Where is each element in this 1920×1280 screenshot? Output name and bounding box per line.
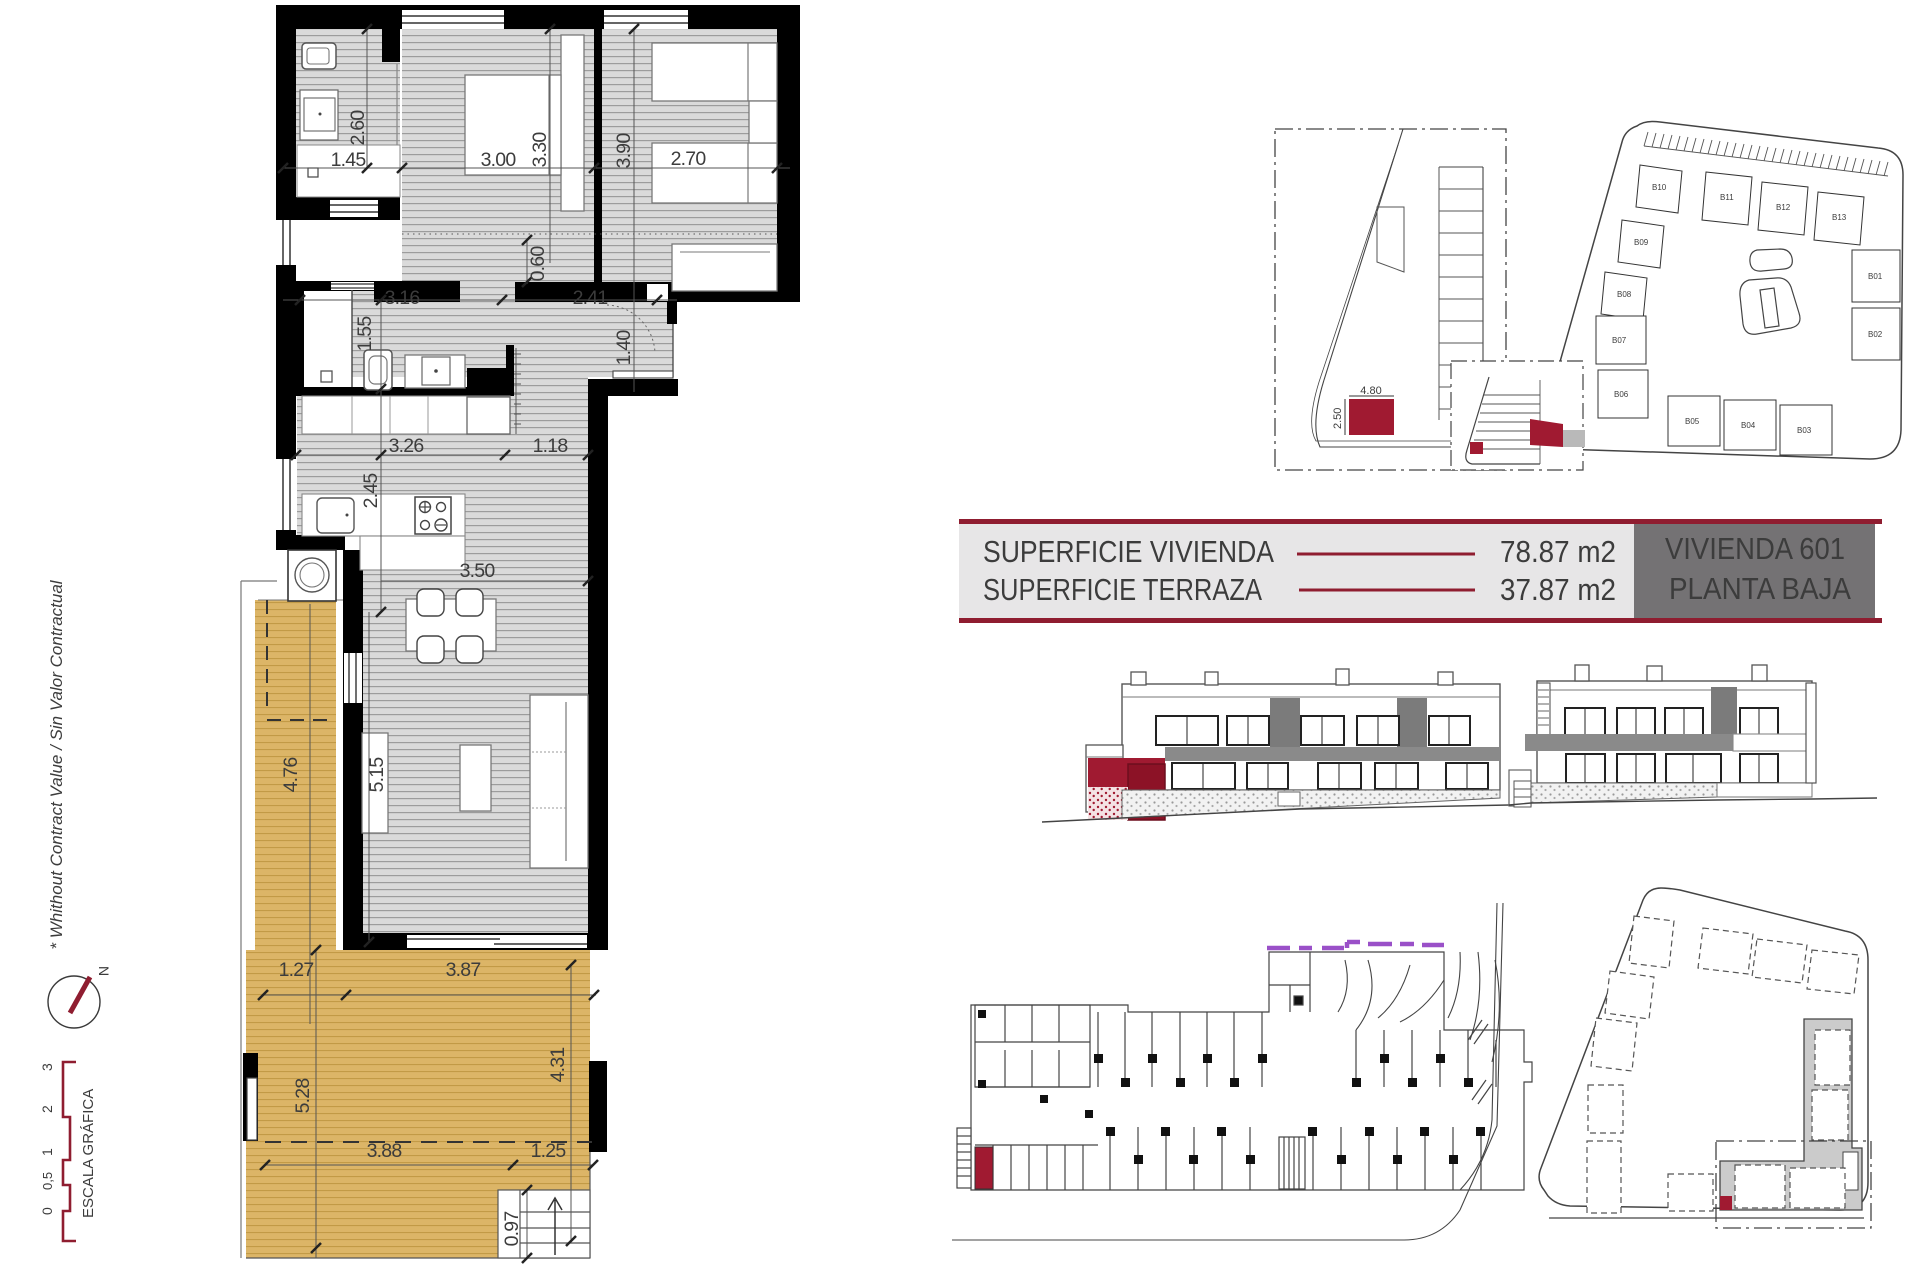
svg-text:3.50: 3.50 xyxy=(460,560,496,582)
svg-text:1.27: 1.27 xyxy=(279,959,314,981)
svg-text:B04: B04 xyxy=(1741,421,1756,430)
svg-text:2.45: 2.45 xyxy=(360,473,382,509)
svg-text:78.87 m2: 78.87 m2 xyxy=(1500,534,1616,569)
svg-text:B07: B07 xyxy=(1612,336,1627,345)
svg-text:3.88: 3.88 xyxy=(367,1140,402,1162)
svg-text:4.76: 4.76 xyxy=(280,758,302,793)
svg-text:1.40: 1.40 xyxy=(613,330,635,366)
svg-text:B13: B13 xyxy=(1832,213,1847,222)
svg-text:SUPERFICIE VIVIENDA: SUPERFICIE VIVIENDA xyxy=(983,534,1274,569)
svg-text:1.55: 1.55 xyxy=(354,316,376,352)
svg-text:ESCALA GRÁFICA: ESCALA GRÁFICA xyxy=(80,1089,97,1218)
svg-text:3.26: 3.26 xyxy=(389,435,424,457)
svg-text:B08: B08 xyxy=(1617,290,1632,299)
svg-text:VIVIENDA 601: VIVIENDA 601 xyxy=(1665,531,1845,566)
svg-text:2.60: 2.60 xyxy=(347,110,369,146)
svg-text:3.16: 3.16 xyxy=(385,287,420,309)
svg-text:3.87: 3.87 xyxy=(446,959,481,981)
svg-text:3.00: 3.00 xyxy=(481,149,517,171)
svg-text:4.31: 4.31 xyxy=(547,1048,569,1083)
svg-text:2.70: 2.70 xyxy=(671,148,707,170)
svg-text:* Whithout Contract Value / Si: * Whithout Contract Value / Sin Valor Co… xyxy=(47,579,66,949)
svg-text:0: 0 xyxy=(39,1207,55,1215)
svg-text:0,5: 0,5 xyxy=(40,1172,55,1190)
svg-text:4.80: 4.80 xyxy=(1360,385,1381,397)
svg-text:B03: B03 xyxy=(1797,426,1812,435)
svg-text:5.15: 5.15 xyxy=(366,757,388,793)
svg-text:3.30: 3.30 xyxy=(529,132,551,168)
svg-text:2.50: 2.50 xyxy=(1332,408,1344,429)
svg-text:0.97: 0.97 xyxy=(501,1212,523,1247)
svg-text:B10: B10 xyxy=(1652,183,1667,192)
svg-text:PLANTA BAJA: PLANTA BAJA xyxy=(1669,571,1851,606)
svg-text:SUPERFICIE TERRAZA: SUPERFICIE TERRAZA xyxy=(983,572,1262,607)
svg-text:B05: B05 xyxy=(1685,417,1700,426)
svg-text:1.18: 1.18 xyxy=(533,435,568,457)
svg-text:B12: B12 xyxy=(1776,203,1791,212)
svg-text:0.60: 0.60 xyxy=(527,246,549,282)
svg-text:B09: B09 xyxy=(1634,238,1649,247)
svg-text:3.90: 3.90 xyxy=(613,133,635,169)
svg-text:1.45: 1.45 xyxy=(331,149,367,171)
svg-text:B02: B02 xyxy=(1868,330,1883,339)
svg-text:3: 3 xyxy=(39,1063,55,1071)
svg-text:2: 2 xyxy=(39,1105,55,1113)
svg-text:2.41: 2.41 xyxy=(573,287,608,309)
svg-text:1.25: 1.25 xyxy=(531,1140,567,1162)
svg-text:1: 1 xyxy=(39,1148,55,1156)
svg-text:37.87 m2: 37.87 m2 xyxy=(1500,572,1616,607)
svg-text:B06: B06 xyxy=(1614,390,1629,399)
svg-text:B01: B01 xyxy=(1868,272,1883,281)
svg-text:N: N xyxy=(96,966,112,976)
svg-text:5.28: 5.28 xyxy=(292,1079,314,1114)
svg-text:B11: B11 xyxy=(1720,193,1734,202)
